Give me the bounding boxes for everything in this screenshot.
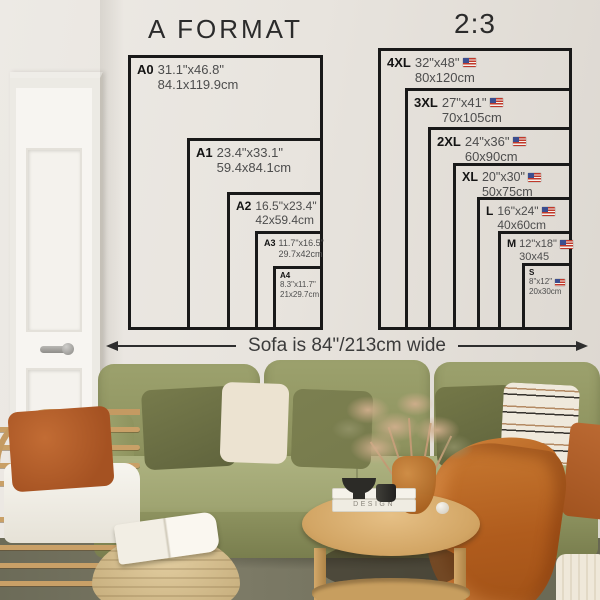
arrow-right-icon <box>576 341 588 351</box>
book <box>332 488 416 499</box>
us-flag-icon <box>513 137 526 146</box>
right-chart-title: 2:3 <box>378 8 572 40</box>
us-flag-icon <box>528 173 541 182</box>
black-cup <box>376 484 396 502</box>
size-label: 4XL 32"x48" 80x120cm <box>387 55 476 86</box>
coffee-table: DESIGN <box>298 430 484 600</box>
white-blanket-edge <box>556 554 600 600</box>
rust-pillow <box>7 406 114 493</box>
dried-leaf <box>434 434 474 460</box>
left-chart-title: A FORMAT <box>118 14 333 45</box>
us-flag-icon <box>555 279 565 286</box>
dried-flower <box>396 392 434 416</box>
door-handle-icon <box>40 346 70 353</box>
size-label: M 12"x18" 30x45 <box>507 238 573 264</box>
size-label: S 8"x12" 20x30cm <box>529 268 565 296</box>
size-frame-a4: A4 8.3"x11.7" 21x29.7cm <box>273 266 323 330</box>
size-label: A1 23.4"x33.1" 59.4x84.1cm <box>196 145 291 176</box>
book-stack: DESIGN <box>332 488 416 512</box>
table-shelf <box>312 578 470 600</box>
arrow-line <box>118 345 236 347</box>
us-flag-icon <box>463 58 476 67</box>
arrow-left-icon <box>106 341 118 351</box>
size-label: A0 31.1"x46.8" 84.1x119.9cm <box>137 62 238 93</box>
dried-leaf <box>332 418 366 440</box>
size-label: A3 11.7"x16.5" 29.7x42cm <box>264 238 324 259</box>
book-spine-text: DESIGN <box>332 501 416 508</box>
us-flag-icon <box>490 98 503 107</box>
door-panel <box>26 148 82 332</box>
sofa-width-annotation: Sofa is 84"/213cm wide <box>106 335 588 357</box>
size-frame-s: S 8"x12" 20x30cm <box>522 263 572 330</box>
us-flag-icon <box>542 207 555 216</box>
size-label: A2 16.5"x23.4" 42x59.4cm <box>236 199 317 227</box>
striped-pillow <box>220 382 290 464</box>
size-label: L 16"x24" 40x60cm <box>486 204 555 232</box>
poster-size-guide-scene: A FORMAT 2:3 A0 31.1"x46.8" 84.1x119.9cm… <box>0 0 600 600</box>
size-label: A4 8.3"x11.7" 21x29.7cm <box>280 271 319 299</box>
decor-sphere <box>436 502 449 514</box>
size-label: XL 20"x30" 50x75cm <box>462 170 541 200</box>
sofa-width-text: Sofa is 84"/213cm wide <box>236 335 458 357</box>
arrow-line <box>458 345 576 347</box>
us-flag-icon <box>560 240 573 249</box>
size-label: 2XL 24"x36" 60x90cm <box>437 134 526 165</box>
size-label: 3XL 27"x41" 70x105cm <box>414 95 503 126</box>
